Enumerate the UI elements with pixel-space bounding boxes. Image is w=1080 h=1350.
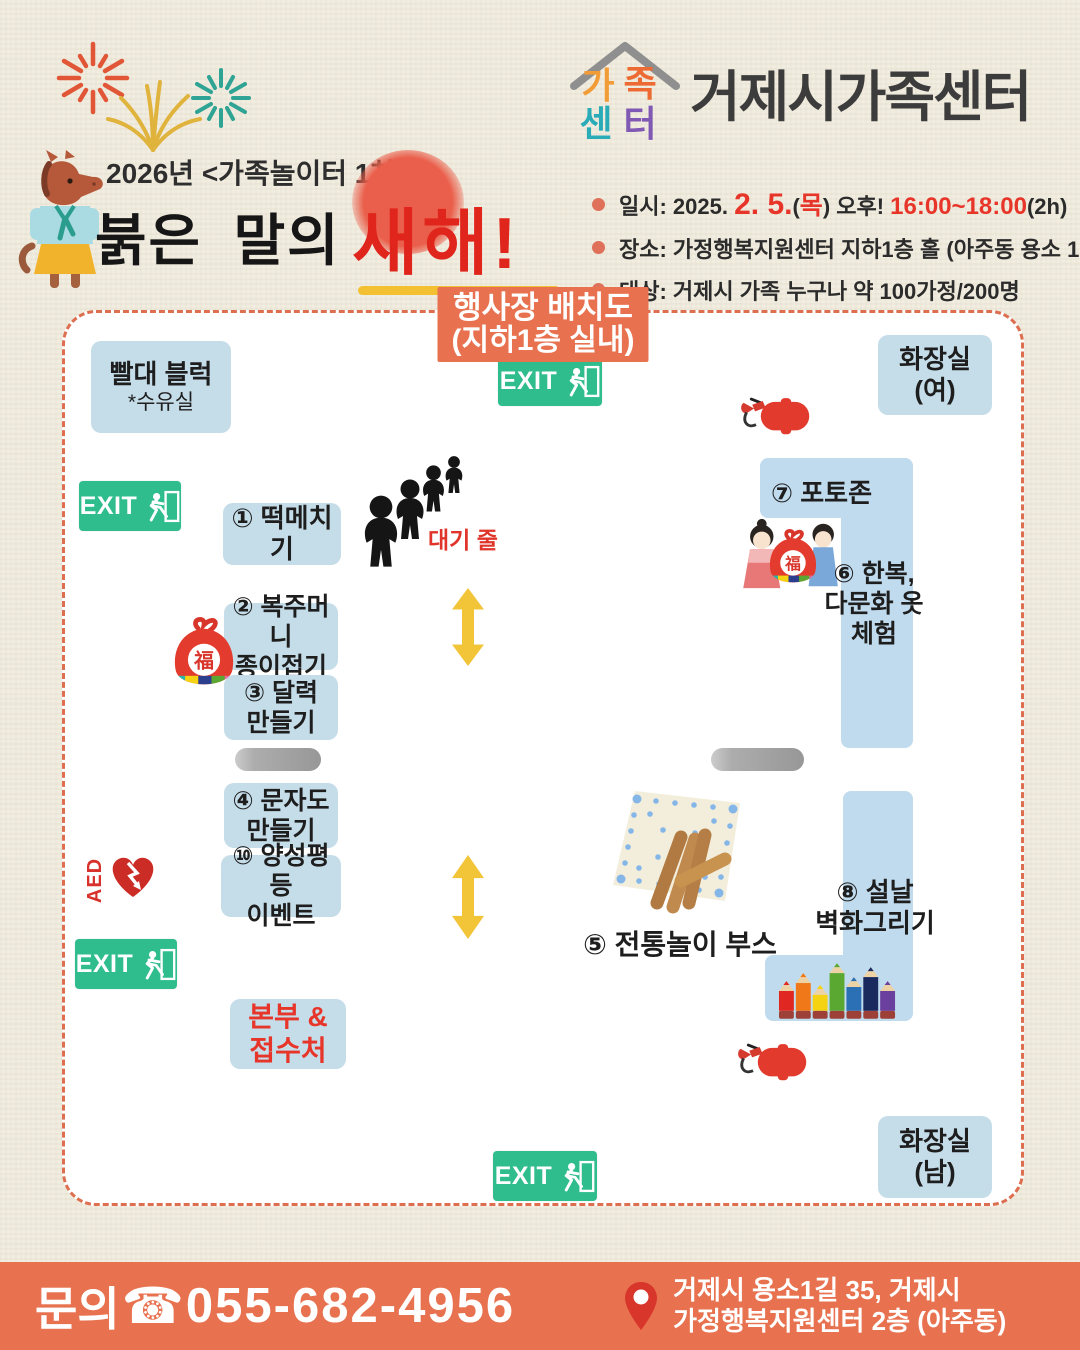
booth-calendar-making: ③ 달력 만들기	[224, 675, 338, 740]
phone-number: 055-682-4956	[186, 1278, 515, 1334]
bullet-icon	[592, 198, 605, 211]
yut-game-board-icon	[605, 783, 750, 928]
phone-icon: ☎	[122, 1277, 184, 1335]
venue-map: 행사장 배치도 (지하1층 실내) EXIT EXIT EXIT EXIT 빨대…	[62, 310, 1024, 1206]
event-title-red: 새해!	[352, 184, 520, 289]
exit-sign-left-lower: EXIT	[75, 939, 177, 989]
exit-runner-icon	[559, 1160, 595, 1193]
pillar-divider	[711, 748, 804, 771]
room-restroom-men: 화장실 (남)	[878, 1116, 992, 1198]
pillar-divider	[235, 748, 321, 771]
exit-sign-bottom: EXIT	[493, 1151, 597, 1201]
inquiry-label: 문의	[35, 1273, 120, 1339]
map-title: 행사장 배치도 (지하1층 실내)	[438, 287, 649, 362]
exit-runner-icon	[140, 948, 176, 981]
aed-heart-icon	[107, 846, 159, 908]
exit-sign-top: EXIT	[498, 356, 602, 406]
event-poster: { "colors":{"accent":"#e8724f","booth_bl…	[0, 0, 1080, 1350]
flow-arrow-icon	[451, 588, 485, 666]
booth-hanbok-label: ⑥ 한복, 다문화 옷 체험	[808, 559, 940, 649]
logo-char-sen: 센	[579, 103, 612, 142]
booth-tteokmechigi: ① 떡메치기	[223, 503, 341, 565]
exit-runner-icon	[144, 490, 180, 523]
booth-lucky-pouch-origami: ② 복주머니 종이접기	[224, 603, 338, 670]
inquiry-phone: 문의 ☎ 055-682-4956	[35, 1273, 515, 1339]
logo-char-jok: 족	[623, 63, 656, 104]
booth-letter-art: ④ 문자도 만들기	[224, 783, 338, 848]
detail-when: 일시: 2025. 2. 5.(목) 오후! 16:00~18:00(2h)	[592, 186, 1080, 222]
address: 거제시 용소1길 35, 거제시 가정행복지원센터 2층 (아주동)	[673, 1275, 1006, 1337]
family-center-logo: 가 족 센 터	[566, 36, 684, 142]
exit-runner-icon	[564, 365, 600, 398]
booth-mural-label: ⑧ 설날 벽화그리기	[805, 877, 945, 939]
booth-folk-games-label: ⑤ 전통놀이 부스	[580, 923, 780, 963]
fire-extinguisher-icon	[738, 393, 814, 445]
footer-bar: 문의 ☎ 055-682-4956 거제시 용소1길 35, 거제시 가정행복지…	[0, 1262, 1080, 1350]
booth-gender-equality-event: ⑩ 양성평등 이벤트	[221, 855, 341, 917]
queue-label: 대기 줄	[428, 521, 498, 555]
room-restroom-women: 화장실 (여)	[878, 335, 992, 415]
booth-hq-reception: 본부 & 접수처	[230, 999, 346, 1069]
fireworks-icon	[25, 26, 265, 154]
room-straw-block: 빨대 블럭 *수유실	[91, 341, 231, 433]
aed-label: AED	[84, 858, 107, 903]
detail-who: 대상: 거제시 가족 누구나 약 100가정/200명	[592, 274, 1080, 306]
queue-person-icon	[441, 455, 467, 495]
location-pin-icon	[623, 1279, 659, 1333]
logo-char-teo: 터	[623, 103, 656, 142]
lucky-pouch-icon	[170, 615, 238, 697]
logo-char-ga: 가	[581, 65, 614, 106]
exit-sign-left-upper: EXIT	[79, 481, 181, 531]
detail-where: 장소: 가정행복지원센터 지하1층 홀 (아주동 용소 1길35)	[592, 232, 1080, 264]
event-details: 일시: 2025. 2. 5.(목) 오후! 16:00~18:00(2h) 장…	[592, 186, 1080, 316]
booth-photozone-label: ⑦ 포토존	[771, 473, 872, 510]
org-name: 거제시가족센터	[690, 52, 1030, 132]
flow-arrow-icon	[451, 855, 485, 939]
colored-pencils-icon	[777, 961, 901, 1019]
fire-extinguisher-icon	[735, 1039, 811, 1091]
event-title-black: 붉은 말의	[95, 196, 341, 277]
bullet-icon	[592, 241, 605, 254]
